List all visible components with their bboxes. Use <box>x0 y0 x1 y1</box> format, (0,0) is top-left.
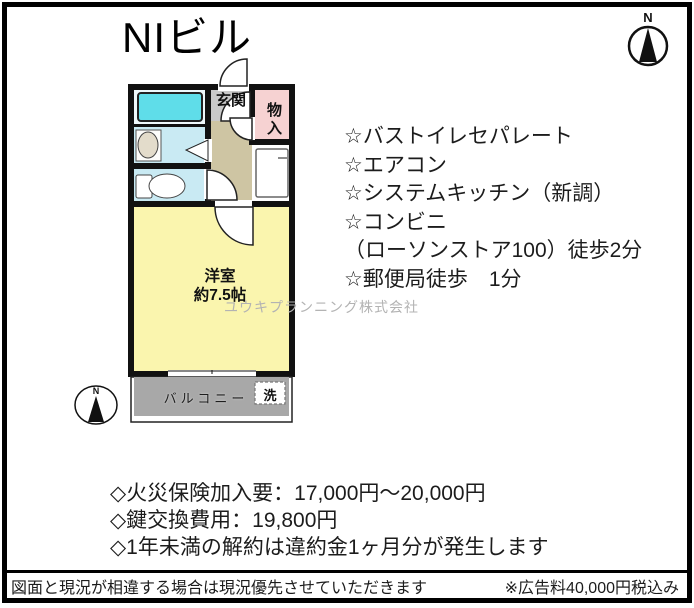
bathtub-icon <box>138 93 202 121</box>
feature-item: ☆エアコン <box>344 152 642 181</box>
balcony-label: バルコニー <box>150 388 262 407</box>
feature-item: ☆バストイレセパレート <box>344 123 642 152</box>
feature-item: （ローソンストア100）徒歩2分 <box>344 237 642 266</box>
watermark: ユウキプランニング株式会社 <box>224 297 419 317</box>
footer-strip: 図面と現況が相違する場合は現況優先させていただきます ※広告料40,000円税込… <box>7 570 687 598</box>
washer-label: 洗 <box>255 385 285 404</box>
note-item: ◇鍵交換費用：19,800円 <box>110 507 549 534</box>
storage-label: 物入 <box>263 102 284 138</box>
entrance-label: 玄関 <box>208 89 254 110</box>
wall-room-top <box>128 201 295 207</box>
compass-north-letter: N <box>643 10 652 25</box>
bath-divider-wall <box>131 124 208 127</box>
feature-list: ☆バストイレセパレート ☆エアコン ☆システムキッチン（新調） ☆コンビニ （ロ… <box>344 123 642 295</box>
note-item: ◇1年未満の解約は違約金1ヶ月分が発生します <box>110 534 549 561</box>
ad-fee-text: ※広告料40,000円税込み <box>505 574 679 598</box>
north-compass-icon: N <box>621 6 675 68</box>
notes-list: ◇火災保険加入要：17,000円～20,000円 ◇鍵交換費用：19,800円 … <box>110 480 549 561</box>
sink-basin-icon <box>138 132 158 158</box>
wall-toilet-top <box>131 163 208 169</box>
small-compass-north-letter: N <box>93 386 100 396</box>
note-item: ◇火災保険加入要：17,000円～20,000円 <box>110 480 549 507</box>
feature-item: ☆郵便局徒歩 1分 <box>344 266 642 295</box>
kitchen-unit-icon <box>256 149 288 197</box>
toilet-bowl-icon <box>149 174 185 198</box>
compass-needle <box>639 28 657 62</box>
floorplan-flyer: NIビル N <box>0 0 694 608</box>
entry-door-arc <box>220 59 247 86</box>
disclaimer-text: 図面と現況が相違する場合は現況優先させていただきます <box>11 574 427 598</box>
feature-item: ☆システムキッチン（新調） <box>344 180 642 209</box>
feature-item: ☆コンビニ <box>344 209 642 238</box>
wall-storage-bottom <box>249 139 295 145</box>
